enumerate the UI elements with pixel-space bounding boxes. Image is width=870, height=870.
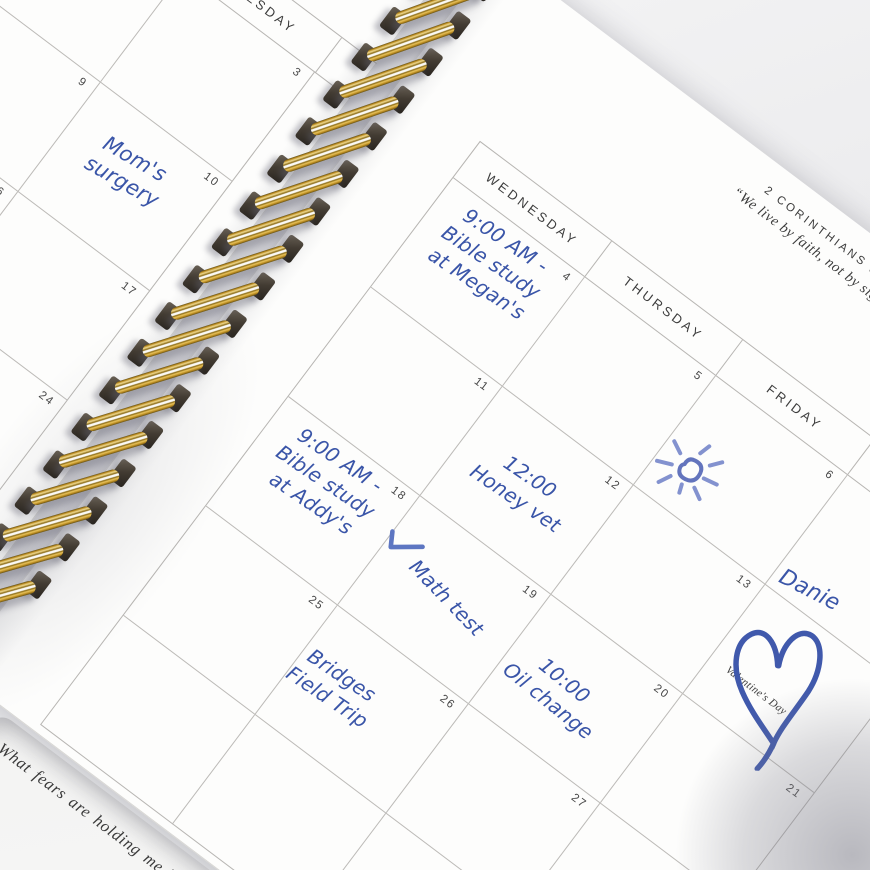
- date-number: 13: [734, 573, 754, 592]
- planner-photo: What fears are holding me b TUESDAY 3: [0, 0, 870, 870]
- date-number: 5: [691, 369, 705, 383]
- date-number: 26: [437, 693, 457, 712]
- date-number: 11: [472, 375, 491, 394]
- date-number: 6: [823, 468, 837, 482]
- date-number: 19: [520, 583, 540, 602]
- date-number: 16: [0, 180, 7, 199]
- page-corner-shadow: [665, 675, 870, 870]
- date-number: 12: [602, 474, 622, 493]
- date-number: 27: [569, 792, 589, 811]
- date-number: 9: [76, 76, 90, 90]
- date-number: 3: [290, 66, 304, 80]
- date-number: 25: [306, 594, 326, 613]
